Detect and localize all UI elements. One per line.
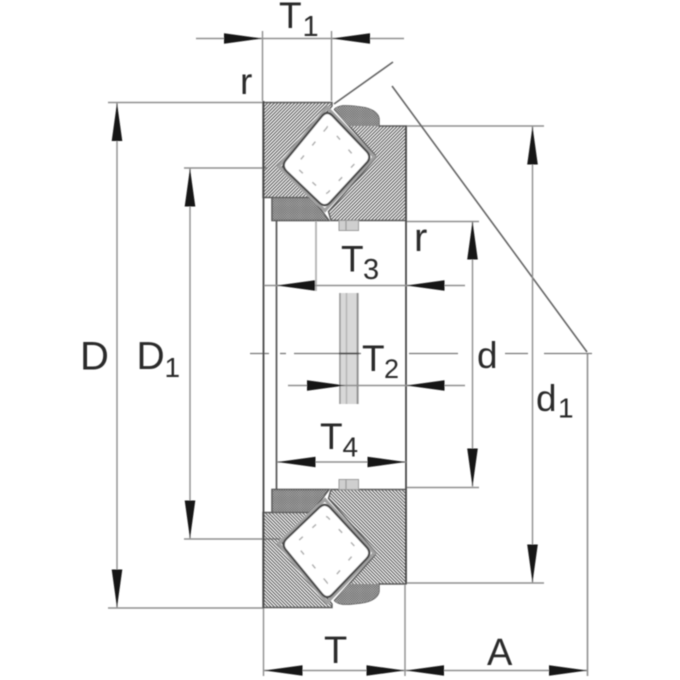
svg-text:1: 1 bbox=[165, 352, 181, 383]
svg-text:A: A bbox=[487, 632, 513, 674]
svg-text:r: r bbox=[414, 216, 427, 260]
svg-text:D: D bbox=[137, 335, 165, 378]
svg-text:T: T bbox=[320, 416, 343, 457]
svg-text:2: 2 bbox=[384, 354, 399, 384]
svg-text:T: T bbox=[362, 338, 385, 379]
svg-text:T: T bbox=[341, 239, 364, 280]
svg-text:d: d bbox=[536, 378, 557, 419]
svg-text:4: 4 bbox=[343, 432, 359, 463]
svg-text:1: 1 bbox=[303, 11, 319, 43]
svg-text:1: 1 bbox=[558, 393, 574, 424]
svg-text:3: 3 bbox=[363, 254, 379, 286]
svg-text:T: T bbox=[324, 630, 347, 672]
svg-text:T: T bbox=[279, 0, 302, 36]
svg-text:r: r bbox=[240, 61, 252, 102]
svg-text:D: D bbox=[80, 335, 109, 379]
svg-text:d: d bbox=[477, 335, 498, 376]
